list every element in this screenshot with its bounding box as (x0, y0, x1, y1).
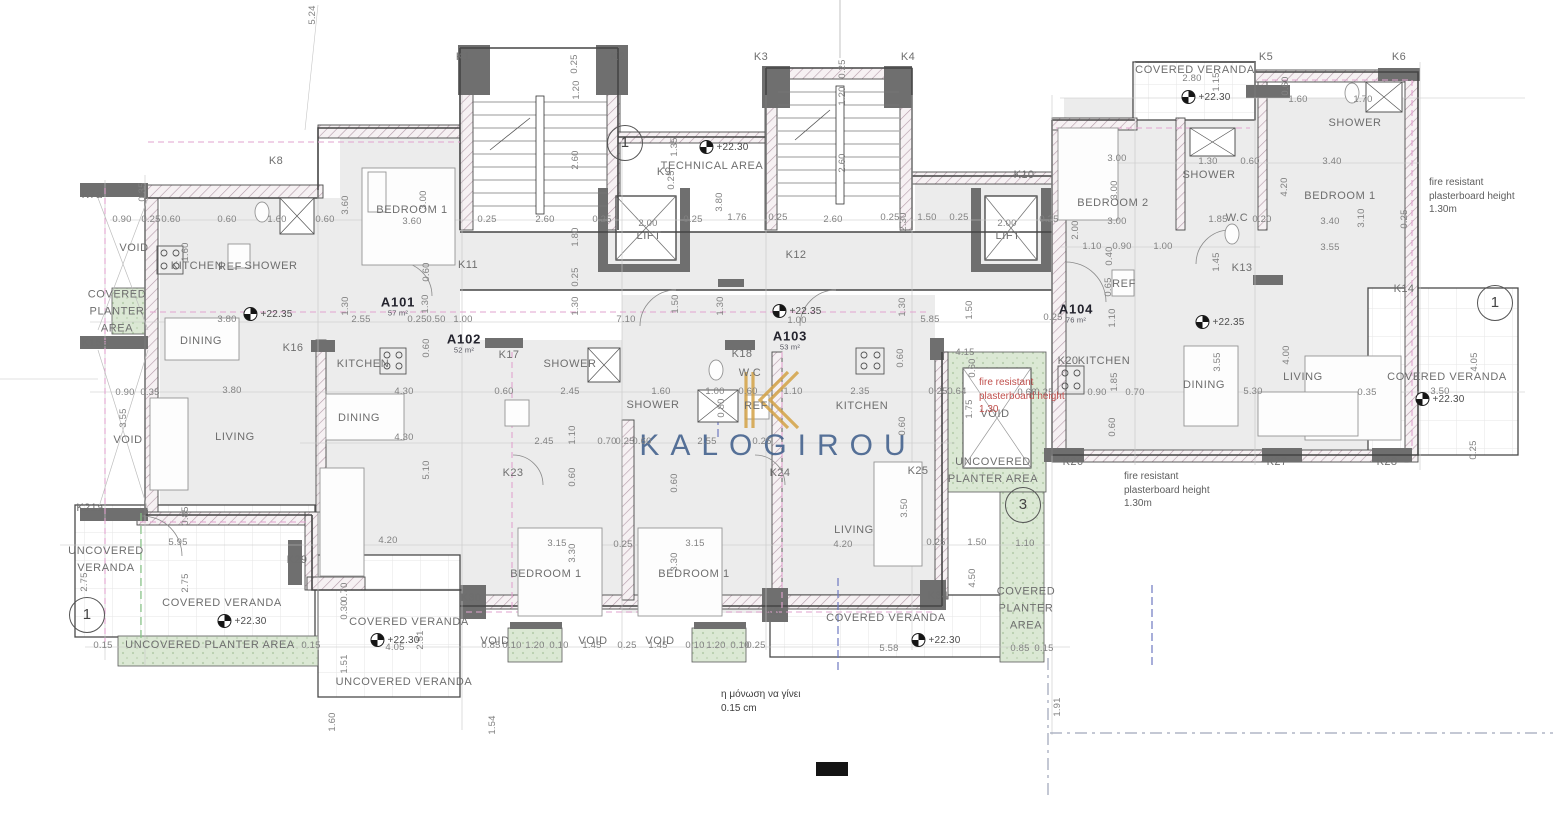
dimension-label: 4.00 (1282, 345, 1292, 364)
grid-marker: K2 (611, 51, 625, 63)
grid-marker: K1 (456, 51, 470, 63)
dimension-label: 1.30 (571, 296, 581, 315)
dimension-label: 0.60 (896, 348, 906, 367)
grid-marker: K25 (908, 465, 929, 477)
elevation-symbol-icon (772, 304, 786, 318)
room-label: COVERED PLANTER AREA (989, 583, 1063, 634)
annotation-note: fire resistantplasterboard height1.30m (1124, 470, 1210, 511)
dimension-label: 2.55 (697, 437, 716, 447)
note-line: 1.30m (1124, 497, 1210, 511)
dimension-label: 3.15 (685, 539, 704, 549)
grid-marker: K4 (901, 51, 915, 63)
dimension-label: 3.40 (1320, 217, 1339, 227)
dimension-label: 1.76 (727, 213, 746, 223)
dimension-label: 1.45 (1212, 252, 1222, 271)
room-label: BEDROOM 1 (510, 568, 581, 580)
room-label: VOID (645, 635, 674, 647)
note-line: plasterboard height (979, 390, 1065, 404)
room-label: SHOWER (244, 260, 297, 272)
room-label: DINING (180, 335, 222, 347)
room-label: DINING (338, 412, 380, 424)
apartment-area: 53 m² (773, 344, 807, 352)
apartment-area: 57 m² (381, 310, 415, 318)
annotation-note: fire resistantplasterboard height1.30 (979, 376, 1065, 417)
dimension-label: 2.00 (997, 219, 1016, 229)
grid-marker: K7a (82, 189, 103, 201)
dimension-label: 1.50 (967, 538, 986, 548)
dimension-label: 0.60 (568, 467, 578, 486)
dimension-label: 4.20 (833, 540, 852, 550)
dimension-label: 3.40 (1322, 157, 1341, 167)
dimension-label: 0.90 (115, 388, 134, 398)
elevation-marker: +22.30 (370, 633, 419, 647)
dimension-label: 0.60 (422, 262, 432, 281)
dimension-label: 3.60 (402, 217, 421, 227)
elevation-marker: +22.30 (217, 614, 266, 628)
room-label: BEDROOM 1 (1304, 190, 1375, 202)
elevation-value: +22.30 (234, 616, 266, 627)
dimension-label: 0.80 (717, 398, 727, 417)
dimension-label: 1.10 (783, 387, 802, 397)
dimension-label: 1.10 (1015, 539, 1034, 549)
grid-marker: K31 (766, 606, 787, 618)
dimension-label: 3.80 (217, 315, 236, 325)
dimension-label: 3.50 (900, 498, 910, 517)
dimension-label: 1.00 (453, 315, 472, 325)
room-label: LIFT (636, 230, 661, 242)
elevation-marker: +22.30 (1181, 90, 1230, 104)
dimension-label: 4.30 (394, 387, 413, 397)
apartment-id: A104 (1059, 303, 1093, 317)
room-label: KITCHEN (171, 260, 223, 272)
grid-marker: K23 (503, 467, 524, 479)
dimension-label: 3.55 (119, 408, 129, 427)
dimension-label: 0.60 (738, 387, 757, 397)
dimension-label: 0.60 (161, 215, 180, 225)
dimension-label: 1.91 (1053, 697, 1063, 716)
dimension-label: 0.25 (926, 538, 945, 548)
elevation-value: +22.30 (928, 635, 960, 646)
dimension-label: 2.00 (1071, 220, 1081, 239)
note-line: plasterboard height (1124, 484, 1210, 498)
room-label: COVERED VERANDA (826, 612, 946, 624)
dimension-label: 2.55 (351, 315, 370, 325)
dimension-label: 0.60 (422, 338, 432, 357)
room-label: LIFT (995, 230, 1020, 242)
apartment-area: 76 m² (1059, 317, 1093, 325)
room-label: KITCHEN (836, 400, 888, 412)
dimension-label: 0.50 (426, 315, 445, 325)
room-label: SHOWER (1182, 169, 1235, 181)
dimension-label: 1.54 (488, 715, 498, 734)
apartment-label: A10252 m² (447, 333, 481, 356)
circled-mark: 1 (1477, 285, 1513, 321)
room-label: COVERED PLANTER AREA (84, 286, 150, 337)
room-label: COVERED VERANDA (162, 597, 282, 609)
dimension-label: 1.60 (651, 387, 670, 397)
dimension-label: 0.15 (301, 641, 320, 651)
dimension-label: 2.00 (638, 219, 657, 229)
dimension-label: 4.20 (1280, 177, 1290, 196)
dimension-label: 3.30 (568, 543, 578, 562)
grid-marker: K9 (657, 166, 671, 178)
note-line: fire resistant (1124, 470, 1210, 484)
dimension-label: 0.60 (315, 215, 334, 225)
circled-mark: 1 (607, 125, 643, 161)
dimension-label: 2.30 (899, 212, 909, 231)
room-label: SHOWER (543, 358, 596, 370)
dimension-label: 0.70 (597, 437, 616, 447)
apartment-label: A10476 m² (1059, 303, 1093, 326)
dimension-label: 1.30 (341, 296, 351, 315)
dimension-label: 0.70 (1125, 388, 1144, 398)
dimension-label: 0.35 (138, 182, 148, 201)
dimension-label: 4.50 (968, 568, 978, 587)
dimension-label: 1.20 (572, 80, 582, 99)
dimension-label: 0.60 (968, 358, 978, 377)
grid-marker: K34 (928, 590, 949, 602)
dimension-label: 0.35 (140, 388, 159, 398)
apartment-id: A103 (773, 330, 807, 344)
grid-marker: K6 (1392, 51, 1406, 63)
grid-marker: K17 (499, 349, 520, 361)
dimension-label: 5.24 (308, 5, 318, 24)
elevation-value: +22.30 (1432, 394, 1464, 405)
dimension-label: 1.60 (1288, 95, 1307, 105)
note-line: 1.30 (979, 403, 1065, 417)
room-label: COVERED VERANDA (349, 616, 469, 628)
dimension-label: 0.60 (494, 387, 513, 397)
grid-marker: K11 (458, 259, 478, 271)
dimension-label: 0.90 (1087, 388, 1106, 398)
apartment-area: 52 m² (447, 347, 481, 355)
grid-marker: K5 (1259, 51, 1273, 63)
dimension-label: 0.25 (949, 213, 968, 223)
room-label: COVERED VERANDA (1387, 371, 1507, 383)
dimension-label: 5.85 (920, 315, 939, 325)
grid-marker: K3 (754, 51, 768, 63)
grid-marker: K13 (1232, 262, 1253, 274)
dimension-label: 0.35 (1357, 388, 1376, 398)
dimension-label: 5.58 (879, 644, 898, 654)
dimension-label: 3.00 (1107, 217, 1126, 227)
circled-mark: 1 (69, 597, 105, 633)
dimension-label: 1.10 (1108, 308, 1118, 327)
apartment-id: A101 (381, 296, 415, 310)
dimension-label: 3.55 (1320, 243, 1339, 253)
dimension-label: 1.10 (1082, 242, 1101, 252)
elevation-marker: +22.30 (699, 140, 748, 154)
dimension-label: 0.25 (838, 59, 848, 78)
dimension-label: 0.60 (1240, 157, 1259, 167)
dimension-label: 4.30 (394, 433, 413, 443)
room-label: VOID (113, 434, 142, 446)
dimension-label: 3.80 (222, 386, 241, 396)
dimension-label: 2.60 (823, 215, 842, 225)
dimension-label: 2.60 (571, 150, 581, 169)
dimension-label: 3.10 (1357, 208, 1367, 227)
dimension-label: 1.20 (838, 86, 848, 105)
grid-marker: K24 (770, 467, 791, 479)
note-line: fire resistant (979, 376, 1065, 390)
dimension-label: 0.25 (752, 437, 771, 447)
dimension-label: 0.25 (141, 215, 160, 225)
room-label: SHOWER (626, 399, 679, 411)
dimension-label: 3.00 (1107, 154, 1126, 164)
dimension-label: 1.20 (706, 641, 725, 651)
dimension-label: 0.25 (768, 213, 787, 223)
room-label: UNCOVERED PLANTER AREA (125, 639, 295, 651)
dimension-label: 1.35 (670, 137, 680, 156)
note-line: plasterboard height (1429, 190, 1515, 204)
annotation-note: fire resistantplasterboard height1.30m (1429, 176, 1515, 217)
dimension-label: 0.25 (477, 215, 496, 225)
dimension-label: 0.25 (746, 641, 765, 651)
room-label: LIVING (834, 524, 874, 536)
note-line: 0.15 cm (721, 702, 800, 716)
dimension-label: 1.60 (267, 215, 286, 225)
dimension-label: 0.40 (1105, 246, 1115, 265)
room-label: UNCOVERED VERANDA (336, 676, 473, 688)
elevation-marker: +22.30 (911, 633, 960, 647)
grid-marker: K27 (1267, 456, 1288, 468)
room-label: BEDROOM 1 (658, 568, 729, 580)
title-block: 1 1)First Floor (0, 800, 400, 838)
room-label: BEDROOM 1 (376, 204, 447, 216)
room-label: VOID (578, 635, 607, 647)
dimension-label: 0.64 (947, 387, 966, 397)
dimension-label: 0.10 (549, 641, 568, 651)
room-label: REF (744, 400, 768, 412)
dimension-label: 1.30 (898, 297, 908, 316)
dimension-label: 2.60 (838, 153, 848, 172)
room-label: UNCOVERED VERANDA (61, 543, 151, 577)
dimension-label: 1.50 (965, 300, 975, 319)
dimension-label: 2.60 (535, 215, 554, 225)
dimension-label: 0.60 (632, 437, 651, 447)
dimension-label: 2.75 (181, 573, 191, 592)
dimension-label: 0.90 (112, 215, 131, 225)
dimension-label: 1.30 (421, 294, 431, 313)
elevation-value: +22.30 (387, 635, 419, 646)
annotation-note: η μόνωση να γίνει0.15 cm (721, 688, 800, 715)
dimension-label: 0.25 (592, 215, 611, 225)
grid-marker: K28 (1377, 456, 1398, 468)
room-label: SHOWER (1328, 117, 1381, 129)
dimension-label: 0.25 (613, 540, 632, 550)
elevation-marker: +22.35 (772, 304, 821, 318)
room-label: REF (218, 261, 242, 273)
dimension-label: 0.60 (1281, 76, 1291, 95)
elevation-symbol-icon (699, 140, 713, 154)
room-label: KITCHEN (337, 358, 389, 370)
grid-marker: K15a (81, 337, 108, 349)
grid-marker: K18 (732, 348, 753, 360)
grid-marker: K30 (461, 592, 482, 604)
elevation-symbol-icon (911, 633, 925, 647)
grid-marker: K16 (283, 342, 304, 354)
elevation-value: +22.35 (789, 306, 821, 317)
dimension-label: 1.00 (705, 387, 724, 397)
elevation-value: +22.35 (1212, 317, 1244, 328)
dimension-label: 2.45 (560, 387, 579, 397)
room-label: VOID (119, 242, 148, 254)
dimension-label: 2.35 (850, 387, 869, 397)
dimension-label: 0.60 (1108, 417, 1118, 436)
room-label: VOID (480, 635, 509, 647)
dimension-label: 1.50 (917, 213, 936, 223)
dimension-label: 0.20 (1252, 215, 1271, 225)
elevation-marker: +22.35 (1195, 315, 1244, 329)
dimension-label: 0.25 (571, 267, 581, 286)
dimension-label: 0.85 (1010, 644, 1029, 654)
dimension-label: 0.25 (683, 215, 702, 225)
dimension-label: 0.25 (1400, 209, 1410, 228)
dimension-label: 0.10 (685, 641, 704, 651)
dimension-label: 5.10 (422, 460, 432, 479)
grid-marker: K21a (76, 502, 103, 514)
dimension-label: 1.10 (568, 425, 578, 444)
dimension-label: 0.25 (1039, 215, 1058, 225)
elevation-symbol-icon (370, 633, 384, 647)
grid-marker: K29 (287, 554, 308, 566)
room-label: W.C (739, 367, 762, 379)
room-label: TECHNICAL AREA (661, 160, 764, 172)
dimension-label: 3.80 (715, 192, 725, 211)
dimension-label: 0.60 (670, 473, 680, 492)
dimension-label: 2.45 (534, 437, 553, 447)
dimension-label: 0.60 (898, 416, 908, 435)
elevation-symbol-icon (217, 614, 231, 628)
room-label: LIVING (1283, 371, 1323, 383)
elevation-value: +22.30 (716, 142, 748, 153)
dimension-label: 0.15 (93, 641, 112, 651)
grid-marker: K14 (1394, 283, 1415, 295)
dimension-label: 0.60 (217, 215, 236, 225)
dimension-label: 5.95 (168, 538, 187, 548)
elevation-marker: +22.35 (243, 307, 292, 321)
floorplan-canvas: KALOGIROU 5.240.251.200.251.202.602.601.… (0, 0, 1555, 838)
dimension-label: 0.70 (340, 582, 350, 601)
dimension-label: 0.25 (570, 54, 580, 73)
apartment-label: A10353 m² (773, 330, 807, 353)
grid-marker: K8 (269, 155, 283, 167)
dimension-label: 3.55 (1213, 352, 1223, 371)
dimension-label: 1.70 (1353, 95, 1372, 105)
elevation-symbol-icon (1195, 315, 1209, 329)
room-label: KITCHEN (1078, 355, 1130, 367)
dimension-label: 1.75 (965, 399, 975, 418)
dimension-label: 1.51 (340, 654, 350, 673)
dimension-label: 3.15 (547, 539, 566, 549)
room-label: BEDROOM 2 (1077, 197, 1148, 209)
dimension-label: 0.25 (1469, 440, 1479, 459)
room-label: W.C (1226, 212, 1249, 224)
dimension-label: 5.30 (1243, 387, 1262, 397)
elevation-symbol-icon (1415, 392, 1429, 406)
labels-layer: 5.240.251.200.251.202.602.601.350.253.80… (0, 0, 1555, 838)
room-label: COVERED VERANDA (1135, 64, 1255, 76)
grid-marker: K20 (1058, 355, 1079, 367)
elevation-marker: +22.30 (1415, 392, 1464, 406)
dimension-label: 1.80 (571, 227, 581, 246)
dimension-label: 1.20 (525, 641, 544, 651)
dimension-label: 1.00 (1153, 242, 1172, 252)
elevation-value: +22.30 (1198, 92, 1230, 103)
circled-mark: 3 (1005, 487, 1041, 523)
elevation-symbol-icon (1181, 90, 1195, 104)
dimension-label: 0.25 (617, 641, 636, 651)
room-label: LIVING (215, 431, 255, 443)
dimension-label: 0.25 (880, 213, 899, 223)
dimension-label: 3.60 (341, 195, 351, 214)
grid-marker: K10 (1014, 169, 1035, 181)
dimension-label: 1.30 (716, 296, 726, 315)
dimension-label: 1.60 (328, 712, 338, 731)
dimension-label: 1.85 (1110, 372, 1120, 391)
dimension-label: 4.20 (378, 536, 397, 546)
dimension-label: 1.60 (181, 242, 191, 261)
room-label: DINING (1183, 379, 1225, 391)
elevation-value: +22.35 (260, 309, 292, 320)
dimension-label: 4.15 (955, 348, 974, 358)
apartment-id: A102 (447, 333, 481, 347)
note-line: fire resistant (1429, 176, 1515, 190)
dimension-label: 1.30 (1198, 157, 1217, 167)
dimension-label: 7.10 (616, 315, 635, 325)
dimension-label: 0.85 (181, 506, 191, 525)
elevation-symbol-icon (243, 307, 257, 321)
dimension-label: 0.25 (928, 387, 947, 397)
apartment-label: A10157 m² (381, 296, 415, 319)
room-label: REF (1112, 278, 1136, 290)
room-label: UNCOVERED PLANTER AREA (935, 454, 1051, 488)
dimension-label: 0.15 (1034, 644, 1053, 654)
note-line: 1.30m (1429, 203, 1515, 217)
dimension-label: 0.90 (1112, 242, 1131, 252)
grid-marker: K26 (1063, 456, 1084, 468)
note-line: η μόνωση να γίνει (721, 688, 800, 702)
dimension-label: 4.05 (1470, 352, 1480, 371)
grid-marker: K12 (786, 249, 807, 261)
dimension-label: 1.50 (671, 294, 681, 313)
